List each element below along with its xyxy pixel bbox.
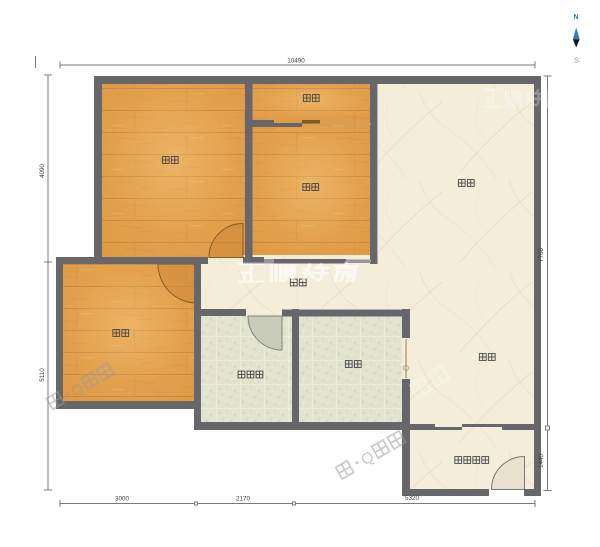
svg-text:1440: 1440 xyxy=(538,454,545,469)
svg-text:4090: 4090 xyxy=(39,164,46,179)
svg-text:3000: 3000 xyxy=(115,496,130,503)
svg-text:7760: 7760 xyxy=(538,248,545,263)
svg-text:5320: 5320 xyxy=(405,495,420,502)
svg-text:10490: 10490 xyxy=(287,58,305,65)
svg-text:S: S xyxy=(574,56,579,65)
svg-text:N: N xyxy=(573,14,578,21)
svg-text:2170: 2170 xyxy=(236,496,251,503)
svg-text:5110: 5110 xyxy=(39,368,46,382)
